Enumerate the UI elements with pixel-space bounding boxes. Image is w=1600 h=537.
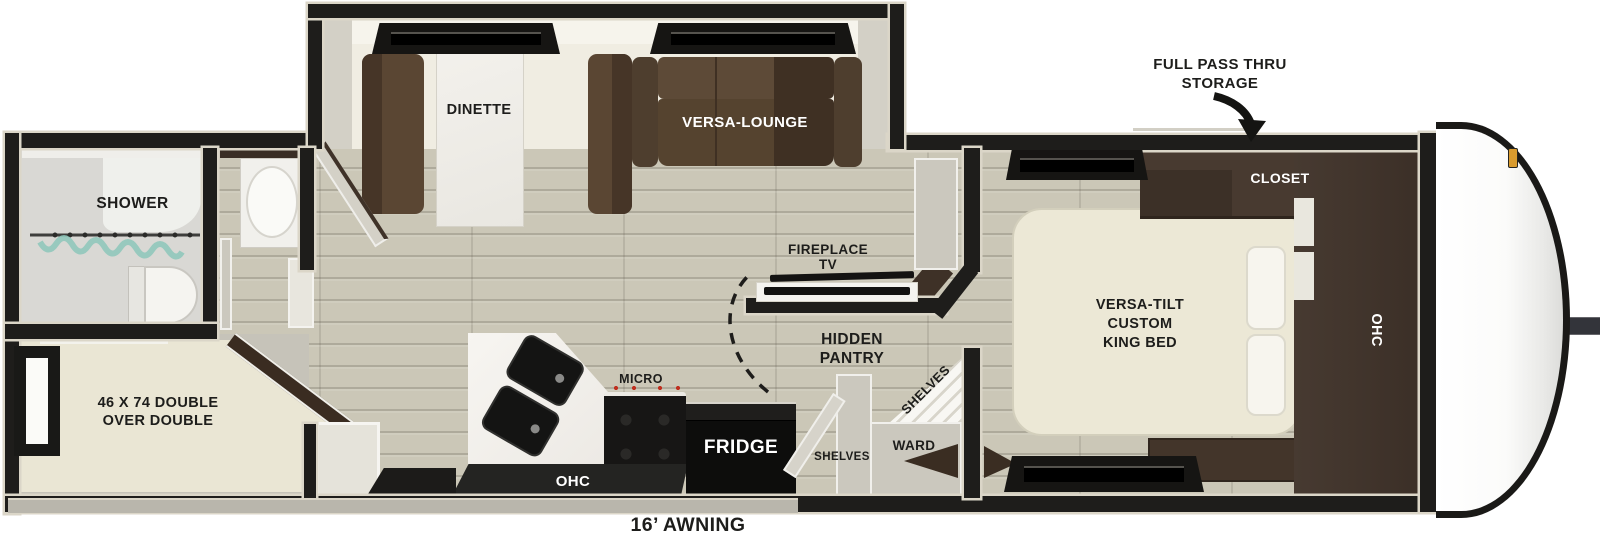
- label-hidden-pantry: HIDDEN PANTRY: [792, 330, 912, 369]
- dinette-bench-right-back: [612, 54, 632, 214]
- pantry-pocket-wall: [914, 158, 958, 270]
- wall-left-rear: [5, 133, 19, 513]
- sofa-arm-right: [834, 57, 862, 167]
- bedroom-wall-upper: [964, 148, 980, 272]
- label-king-bed-line3: KING BED: [1103, 335, 1177, 351]
- toilet-room-right-wall: [300, 148, 314, 270]
- closet-cabinet-step: [1140, 170, 1232, 216]
- label-micro: MICRO: [608, 372, 674, 388]
- slide-window-right: [650, 23, 856, 54]
- shelves-partition: [836, 374, 872, 496]
- wall-front-right: [1420, 133, 1436, 512]
- label-king-bed-line1: VERSA-TILT: [1096, 297, 1184, 313]
- label-king-bed: VERSA-TILT CUSTOM KING BED: [1075, 296, 1205, 353]
- pillow-top: [1246, 246, 1286, 330]
- label-shelves-wall: SHELVES: [802, 450, 882, 464]
- label-versa-lounge: VERSA-LOUNGE: [656, 114, 834, 133]
- bunk-window-glass: [26, 358, 48, 444]
- wardrobe-cubby-2: [1294, 252, 1314, 300]
- tv-screen: [764, 287, 910, 295]
- marker-light: [1508, 148, 1518, 168]
- slide-wall-left: [308, 4, 322, 149]
- label-ohc-kitchen: OHC: [540, 473, 606, 492]
- dinette-table: [436, 47, 524, 227]
- bath-bottom-wall: [5, 324, 217, 339]
- sofa-back-cushions: [658, 57, 834, 99]
- label-hidden-pantry-line2: PANTRY: [820, 350, 884, 367]
- sofa-arm-left: [632, 57, 658, 167]
- slide-window-right-glass: [671, 32, 836, 46]
- bunk-step-box: [316, 422, 380, 498]
- hall-wall-stub: [220, 238, 232, 330]
- slideout-sidewall-right: [858, 18, 890, 149]
- label-closet: CLOSET: [1230, 170, 1330, 188]
- vanity-shelf: [220, 148, 304, 158]
- front-cap: [1436, 122, 1570, 518]
- label-shower: SHOWER: [40, 194, 225, 213]
- slide-window-left: [372, 23, 560, 54]
- label-bunk-line1: 46 X 74 DOUBLE: [98, 395, 219, 411]
- storage-arrow-shaft: [1214, 96, 1251, 124]
- bedroom-window-bottom-glass: [1024, 466, 1184, 482]
- slide-wall-top: [308, 4, 904, 18]
- label-full-pass-thru-line2: STORAGE: [1182, 75, 1259, 92]
- label-fridge: FRIDGE: [692, 436, 790, 460]
- slide-wall-right: [890, 4, 904, 149]
- slide-window-left-glass: [391, 32, 541, 46]
- awning-rail: [8, 498, 798, 513]
- pillow-bottom: [1246, 334, 1286, 416]
- label-full-pass-thru-line1: FULL PASS THRU: [1153, 56, 1286, 73]
- slideout-sidewall-left: [322, 18, 352, 149]
- bedroom-wardrobe-ohc: [1294, 150, 1434, 498]
- bath-divider-wall: [203, 148, 217, 334]
- label-king-bed-line2: CUSTOM: [1108, 316, 1173, 332]
- floorplan-canvas: FULL PASS THRU STORAGE DINETTE VERSA-LOU…: [0, 0, 1600, 537]
- bunk-wall-stub: [304, 424, 316, 498]
- bedroom-window-top-glass: [1020, 158, 1134, 171]
- wall-top-left: [5, 133, 319, 148]
- wardrobe-cubby-1: [1294, 198, 1314, 246]
- pass-thru-door-seam: [1133, 128, 1253, 131]
- bedroom-window-bottom: [1004, 456, 1204, 492]
- label-bunk: 46 X 74 DOUBLE OVER DOUBLE: [70, 394, 246, 430]
- shower-wall-band: [22, 148, 202, 158]
- shower-pan: [103, 154, 201, 232]
- fridge-top-band: [686, 404, 796, 421]
- label-bunk-line2: OVER DOUBLE: [103, 413, 214, 429]
- dinette-bench-left-back: [362, 54, 382, 214]
- label-full-pass-thru-storage: FULL PASS THRU STORAGE: [1120, 56, 1320, 94]
- label-fireplace-line1: FIREPLACE: [788, 242, 868, 257]
- bedroom-wall-lower: [964, 348, 980, 498]
- label-ward: WARD: [874, 438, 954, 455]
- bedroom-window-top: [1006, 150, 1148, 180]
- label-ohc-bedroom: OHC: [1367, 300, 1385, 360]
- label-fireplace-line2: TV: [819, 257, 837, 272]
- vanity-sink-bowl: [246, 166, 298, 238]
- label-awning: 16’ AWNING: [600, 513, 776, 537]
- label-fireplace-tv: FIREPLACE TV: [770, 243, 886, 273]
- label-dinette: DINETTE: [436, 101, 522, 119]
- label-hidden-pantry-line1: HIDDEN: [821, 331, 883, 348]
- stove: [604, 392, 686, 474]
